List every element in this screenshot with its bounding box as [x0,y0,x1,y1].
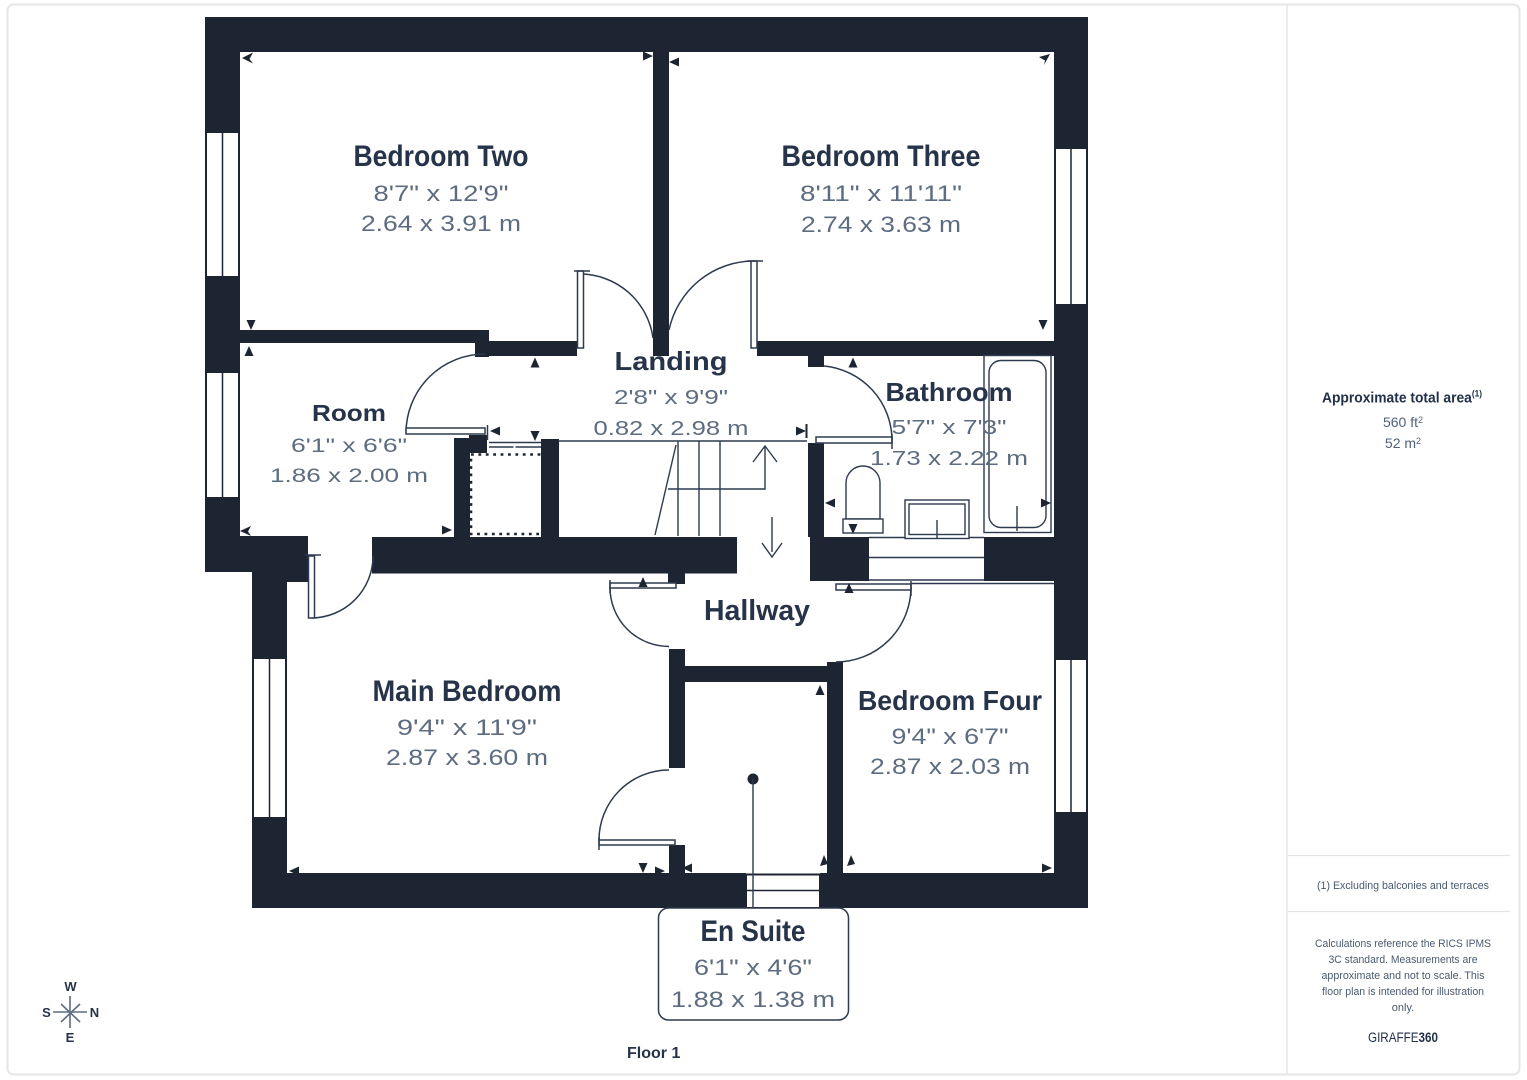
svg-text:Approximate total area(1): Approximate total area(1) [1322,389,1482,407]
svg-text:floor plan is intended for ill: floor plan is intended for illustration [1322,986,1484,998]
svg-text:52 m2: 52 m2 [1385,435,1421,451]
svg-text:2.87 x 3.60 m: 2.87 x 3.60 m [386,745,548,770]
svg-text:En Suite: En Suite [701,915,806,948]
svg-text:2.74 x 3.63 m: 2.74 x 3.63 m [801,212,961,237]
svg-text:0.82 x 2.98 m: 0.82 x 2.98 m [594,418,749,440]
svg-text:1.86 x 2.00 m: 1.86 x 2.00 m [270,466,428,487]
svg-text:Main Bedroom: Main Bedroom [373,675,562,708]
svg-text:approximate and not to scale.: approximate and not to scale. This [1322,970,1485,982]
svg-text:9'4" x 11'9": 9'4" x 11'9" [397,715,537,740]
svg-text:GIRAFFE360: GIRAFFE360 [1368,1030,1438,1045]
svg-text:6'1" x 6'6": 6'1" x 6'6" [291,436,407,457]
svg-text:Landing: Landing [615,346,728,376]
svg-text:Bathroom: Bathroom [886,377,1013,407]
svg-text:3C standard. Measurements are: 3C standard. Measurements are [1329,954,1478,966]
svg-text:5'7" x 7'3": 5'7" x 7'3" [892,417,1007,439]
svg-text:2.64 x 3.91 m: 2.64 x 3.91 m [361,211,521,236]
svg-text:560 ft2: 560 ft2 [1383,414,1423,430]
svg-text:6'1" x 4'6": 6'1" x 4'6" [694,955,812,980]
svg-text:2'8" x 9'9": 2'8" x 9'9" [614,387,728,409]
svg-text:(1) Excluding balconies and te: (1) Excluding balconies and terraces [1317,880,1489,892]
svg-text:9'4" x 6'7": 9'4" x 6'7" [892,724,1009,749]
svg-text:only.: only. [1392,1002,1414,1014]
svg-text:8'7" x 12'9": 8'7" x 12'9" [374,181,509,206]
svg-text:8'11" x 11'11": 8'11" x 11'11" [800,181,962,206]
svg-text:1.73 x 2.22 m: 1.73 x 2.22 m [870,448,1028,470]
svg-text:S: S [42,1005,51,1020]
svg-text:Floor 1: Floor 1 [627,1045,680,1062]
svg-text:N: N [90,1005,99,1020]
svg-text:2.87 x 2.03 m: 2.87 x 2.03 m [870,754,1030,779]
svg-text:E: E [66,1030,75,1045]
svg-text:W: W [64,979,77,994]
svg-text:Calculations reference the RIC: Calculations reference the RICS IPMS [1315,938,1491,950]
svg-text:Bedroom Four: Bedroom Four [858,685,1042,716]
svg-text:Room: Room [312,400,386,426]
svg-text:Bedroom Two: Bedroom Two [354,140,529,173]
svg-text:1.88 x 1.38 m: 1.88 x 1.38 m [671,987,835,1012]
svg-text:Hallway: Hallway [704,595,810,627]
svg-text:Bedroom Three: Bedroom Three [782,140,981,173]
